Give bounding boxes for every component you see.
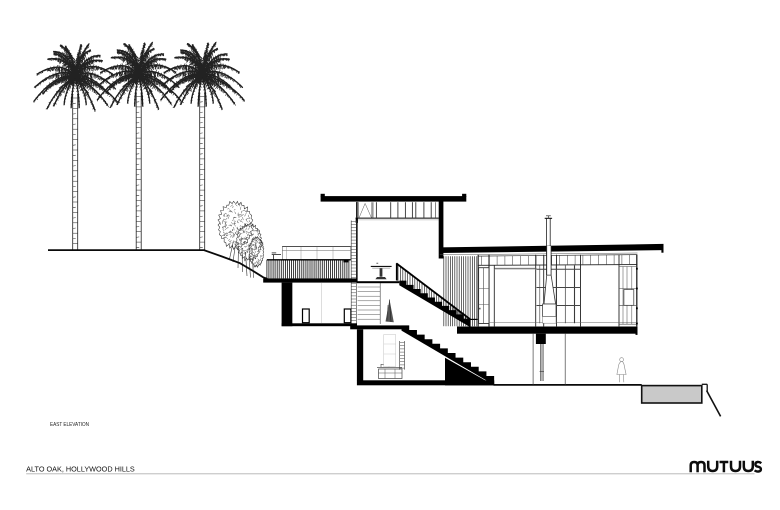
svg-text:EAST ELEVATION: EAST ELEVATION	[50, 422, 89, 428]
svg-text:ALTO OAK, HOLLYWOOD HILLS: ALTO OAK, HOLLYWOOD HILLS	[26, 465, 135, 474]
